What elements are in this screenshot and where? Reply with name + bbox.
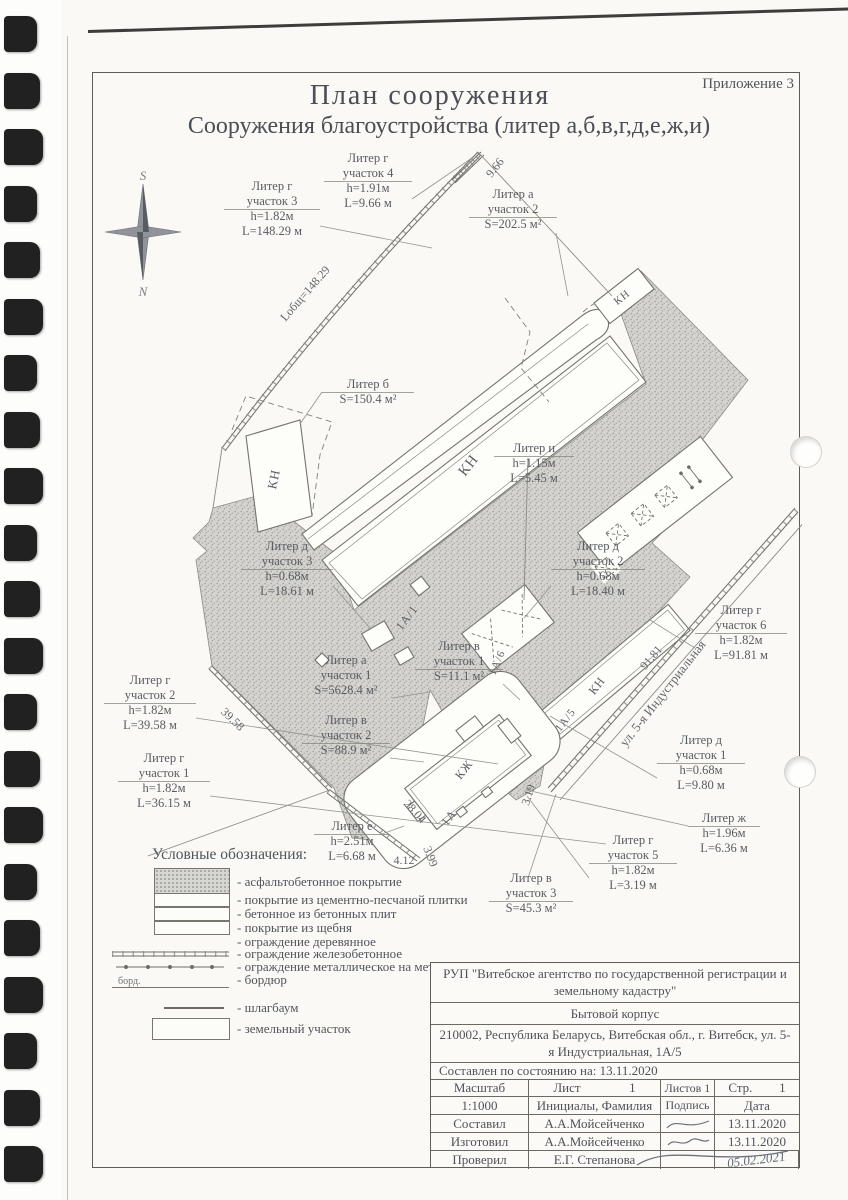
svg-text:S=88.9 м²: S=88.9 м² bbox=[321, 743, 372, 757]
svg-text:участок 3: участок 3 bbox=[247, 194, 298, 208]
table-row-made-by: Изготовил А.А.Мойсейченко 13.11.2020 bbox=[431, 1133, 799, 1151]
svg-text:L=3.19 м: L=3.19 м bbox=[609, 878, 657, 892]
binding-comb bbox=[4, 977, 43, 1013]
dim-9-66: 9.66 bbox=[483, 155, 507, 180]
table-row-compiled-by: Составил А.А.Мойсейченко 13.11.2020 bbox=[431, 1115, 799, 1133]
compass-rose: S N bbox=[105, 168, 181, 299]
page-title: План сооружения bbox=[150, 80, 710, 112]
svg-text:Литер и: Литер и bbox=[513, 441, 556, 455]
svg-text:h=1.82м: h=1.82м bbox=[128, 703, 171, 717]
svg-text:S=11.1 м²: S=11.1 м² bbox=[434, 669, 484, 683]
svg-text:участок 2: участок 2 bbox=[488, 202, 539, 216]
svg-text:Литер в: Литер в bbox=[510, 871, 552, 885]
svg-text:L=36.15 м: L=36.15 м bbox=[137, 796, 191, 810]
object-name: Бытовой корпус bbox=[431, 1003, 799, 1025]
svg-text:L=6.68 м: L=6.68 м bbox=[328, 849, 376, 863]
svg-text:h=1.82м: h=1.82м bbox=[611, 863, 654, 877]
scale-header: Масштаб bbox=[431, 1080, 529, 1096]
object-address: 210002, Республика Беларусь, Витебская о… bbox=[431, 1025, 799, 1063]
binding-comb bbox=[4, 1090, 40, 1126]
table-header-row: Масштаб Лист1 Листов 1 Стр.1 bbox=[431, 1080, 799, 1097]
legend-item-parcel: - земельный участок bbox=[112, 1018, 351, 1040]
svg-text:Литер г: Литер г bbox=[348, 151, 389, 165]
svg-text:Литер г: Литер г bbox=[613, 833, 654, 847]
binding-comb bbox=[4, 73, 40, 109]
compass-north: N bbox=[138, 284, 149, 299]
signature bbox=[661, 1133, 715, 1150]
label-liter-v-u3: Литер вучасток 3 S=45.3 м² bbox=[489, 871, 573, 915]
svg-text:h=1.96м: h=1.96м bbox=[702, 826, 745, 840]
sheet-header: Лист1 bbox=[529, 1080, 661, 1096]
svg-text:L=9.66 м: L=9.66 м bbox=[344, 196, 392, 210]
svg-text:участок 1: участок 1 bbox=[321, 668, 372, 682]
svg-text:Литер д: Литер д bbox=[577, 539, 620, 553]
dim-4-12: 4.12 bbox=[394, 853, 415, 867]
svg-text:L=91.81 м: L=91.81 м bbox=[714, 648, 768, 662]
binding-comb bbox=[4, 581, 40, 617]
svg-text:S=45.3 м²: S=45.3 м² bbox=[506, 901, 557, 915]
page-header: Стр.1 bbox=[715, 1080, 799, 1096]
binding-comb bbox=[4, 129, 43, 165]
svg-text:участок 4: участок 4 bbox=[343, 166, 394, 180]
svg-text:L=18.40 м: L=18.40 м bbox=[571, 584, 625, 598]
svg-text:h=0.68м: h=0.68м bbox=[265, 569, 308, 583]
svg-text:L=5.45 м: L=5.45 м bbox=[510, 471, 558, 485]
svg-text:h=1.15м: h=1.15м bbox=[512, 456, 555, 470]
label-liter-zh: Литер жh=1.96м L=6.36 м bbox=[688, 811, 760, 855]
svg-text:участок 2: участок 2 bbox=[573, 554, 624, 568]
binding-comb bbox=[4, 299, 43, 335]
svg-text:участок 1: участок 1 bbox=[434, 654, 485, 668]
legend-title: Условные обозначения: bbox=[152, 846, 307, 864]
svg-text:S=5628.4 м²: S=5628.4 м² bbox=[314, 683, 377, 697]
binding-comb bbox=[4, 16, 37, 52]
svg-text:h=1.82м: h=1.82м bbox=[250, 209, 293, 223]
scanned-site-plan-page: Приложение 3 План сооружения Сооружения … bbox=[0, 0, 848, 1200]
svg-text:участок 6: участок 6 bbox=[716, 618, 767, 632]
binding-comb bbox=[4, 1033, 37, 1069]
hole-punch bbox=[785, 757, 815, 787]
label-liter-g-u2: Литер гучасток 2 h=1.82мL=39.58 м bbox=[104, 673, 196, 732]
organization-name: РУП "Витебское агентство по государствен… bbox=[431, 963, 799, 1003]
gravel-swatch bbox=[154, 921, 230, 935]
svg-text:Литер е: Литер е bbox=[331, 819, 373, 833]
svg-text:Литер д: Литер д bbox=[680, 733, 723, 747]
sheets-header: Листов 1 bbox=[661, 1080, 715, 1096]
svg-text:L=6.36 м: L=6.36 м bbox=[700, 841, 748, 855]
svg-text:участок 3: участок 3 bbox=[262, 554, 313, 568]
label-liter-d-u1: Литер дучасток 1 h=0.68мL=9.80 м bbox=[657, 733, 745, 792]
table-row-checked-by: Проверил Е.Г. Степанова 05.02.2021 bbox=[431, 1151, 799, 1169]
binding-comb bbox=[4, 920, 40, 956]
svg-text:Литер а: Литер а bbox=[492, 187, 534, 201]
compass-south: S bbox=[140, 168, 147, 183]
svg-text:Литер д: Литер д bbox=[266, 539, 309, 553]
binding-comb bbox=[4, 468, 43, 504]
svg-text:Литер ж: Литер ж bbox=[702, 811, 747, 825]
label-liter-a-u2: Литер аучасток 2 S=202.5 м² bbox=[469, 187, 557, 231]
parcel-swatch bbox=[112, 1018, 229, 1040]
svg-text:участок 2: участок 2 bbox=[321, 728, 372, 742]
svg-text:S=202.5 м²: S=202.5 м² bbox=[485, 217, 542, 231]
label-liter-g-u4: Литер гучасток 4 h=1.91мL=9.66 м bbox=[324, 151, 412, 210]
svg-text:h=0.68м: h=0.68м bbox=[576, 569, 619, 583]
binding-comb bbox=[4, 638, 43, 674]
signature bbox=[661, 1115, 715, 1132]
binding-comb bbox=[4, 186, 37, 222]
svg-text:h=2.51м: h=2.51м bbox=[330, 834, 373, 848]
svg-text:h=1.82м: h=1.82м bbox=[719, 633, 762, 647]
svg-text:h=1.91м: h=1.91м bbox=[346, 181, 389, 195]
svg-text:участок 5: участок 5 bbox=[608, 848, 659, 862]
legend-item-curb: борд. - бордюр bbox=[112, 972, 287, 988]
svg-text:L=148.29 м: L=148.29 м bbox=[242, 224, 302, 238]
binding-comb bbox=[4, 807, 43, 843]
svg-text:Литер а: Литер а bbox=[325, 653, 367, 667]
slabs-swatch bbox=[154, 907, 230, 921]
svg-text:Литер г: Литер г bbox=[721, 603, 762, 617]
dim-l-148-29: Lобщ=148.29 bbox=[277, 263, 332, 324]
boundary-w bbox=[213, 448, 222, 508]
svg-text:участок 3: участок 3 bbox=[506, 886, 557, 900]
signature bbox=[661, 1151, 715, 1169]
binding-comb bbox=[4, 242, 40, 278]
binding-strip bbox=[0, 0, 62, 1200]
label-liter-g-u3: Литер гучасток 3 h=1.82мL=148.29 м bbox=[224, 179, 320, 238]
svg-text:Литер б: Литер б bbox=[347, 377, 389, 391]
svg-text:h=0.68м: h=0.68м bbox=[679, 763, 722, 777]
metal-fence-swatch bbox=[112, 962, 229, 972]
binding-comb bbox=[4, 355, 37, 391]
svg-text:Литер г: Литер г bbox=[130, 673, 171, 687]
sign-header: Подпись bbox=[661, 1097, 715, 1114]
svg-text:h=1.82м: h=1.82м bbox=[142, 781, 185, 795]
tile-swatch bbox=[154, 893, 230, 907]
title-block: РУП "Витебское агентство по государствен… bbox=[430, 962, 800, 1168]
svg-text:участок 1: участок 1 bbox=[139, 766, 190, 780]
label-liter-g-u1: Литер гучасток 1 h=1.82мL=36.15 м bbox=[118, 751, 210, 810]
binding-comb bbox=[4, 412, 40, 448]
binding-comb bbox=[4, 694, 37, 730]
svg-text:Литер г: Литер г bbox=[252, 179, 293, 193]
compiled-date: Составлен по состоянию на: 13.11.2020 bbox=[431, 1063, 799, 1080]
scale-value: 1:1000 bbox=[431, 1097, 529, 1114]
concrete-fence-swatch bbox=[112, 949, 229, 959]
svg-text:S=150.4 м²: S=150.4 м² bbox=[340, 392, 397, 406]
paper-left-edge bbox=[67, 36, 68, 1200]
svg-text:участок 2: участок 2 bbox=[125, 688, 176, 702]
svg-text:L=18.61 м: L=18.61 м bbox=[260, 584, 314, 598]
binding-comb bbox=[4, 751, 40, 787]
barrier-swatch bbox=[112, 1007, 229, 1009]
table-subheader-row: 1:1000 Инициалы, Фамилия Подпись Дата bbox=[431, 1097, 799, 1115]
svg-text:L=39.58 м: L=39.58 м bbox=[123, 718, 177, 732]
binding-comb bbox=[4, 1146, 43, 1182]
svg-text:Литер г: Литер г bbox=[144, 751, 185, 765]
svg-text:участок 1: участок 1 bbox=[676, 748, 727, 762]
paper-top-edge bbox=[88, 7, 848, 33]
svg-text:Литер в: Литер в bbox=[325, 713, 367, 727]
name-header: Инициалы, Фамилия bbox=[529, 1097, 661, 1114]
curb-swatch: борд. bbox=[112, 976, 229, 988]
binding-comb bbox=[4, 864, 37, 900]
date-header: Дата bbox=[715, 1097, 799, 1114]
binding-comb bbox=[4, 525, 37, 561]
svg-text:Литер в: Литер в bbox=[438, 639, 480, 653]
svg-text:L=9.80 м: L=9.80 м bbox=[677, 778, 725, 792]
label-liter-b: Литер бS=150.4 м² bbox=[322, 377, 414, 406]
label-liter-g-u5: Литер гучасток 5 h=1.82мL=3.19 м bbox=[589, 833, 677, 892]
dim-39-58: 39.58 bbox=[218, 705, 247, 734]
legend-item-barrier: - шлагбаум bbox=[112, 1000, 298, 1016]
hole-punch bbox=[791, 437, 821, 467]
